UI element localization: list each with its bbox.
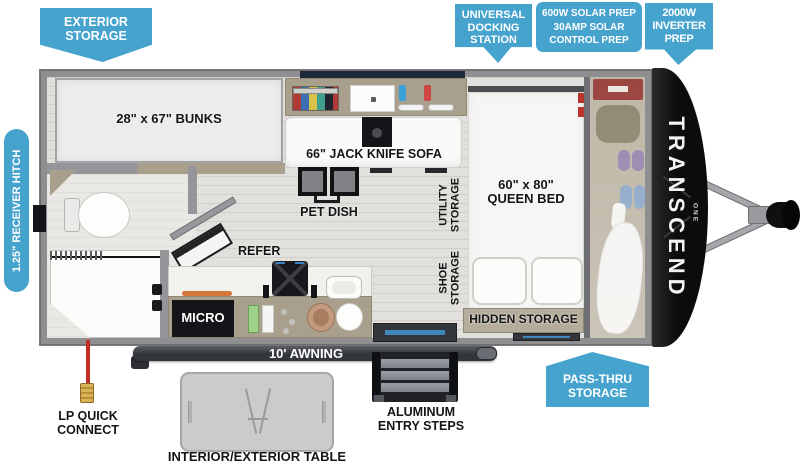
front-cap: TRANSCEND ONE — [652, 68, 708, 347]
joycon-red — [424, 85, 431, 101]
brand-sublogo: ONE — [691, 203, 698, 223]
bed-mat — [513, 333, 580, 341]
pillow-2 — [531, 257, 583, 305]
bowl-inner — [313, 309, 329, 326]
sofa-label: 66" JACK KNIFE SOFA — [295, 148, 453, 162]
stove-knob — [263, 285, 269, 298]
shower-fixture — [152, 284, 162, 295]
bathroom-wall — [188, 166, 197, 214]
sink-basin — [332, 281, 356, 294]
overhead-cabinet — [285, 78, 467, 116]
pet-dish-stand — [314, 196, 340, 203]
callout-solar-prep: 600W SOLAR PREP 30AMP SOLAR CONTROL PREP — [536, 2, 642, 52]
pet-dish-icon — [298, 167, 327, 196]
refer-label: REFER — [238, 245, 300, 259]
utility-storage-label: UTILITY STORAGE — [438, 178, 463, 232]
table-leg-bar — [248, 418, 268, 420]
step-tread — [381, 359, 449, 368]
step-tread-2 — [381, 371, 449, 380]
callout-receiver-hitch: 1.25" RECEIVER HITCH — [4, 129, 29, 292]
pass-thru-glass — [590, 77, 645, 338]
shoe-storage-label: SHOE STORAGE — [438, 251, 463, 305]
table-leg — [245, 388, 257, 433]
hidden-storage-label: HIDDEN STORAGE — [463, 313, 584, 326]
utensil — [281, 309, 287, 315]
lp-line — [86, 340, 90, 385]
tv-dot — [371, 97, 376, 102]
brand-logo: TRANSCEND — [663, 116, 689, 299]
pillow — [472, 257, 527, 305]
sofa-console-dot — [372, 128, 382, 138]
awning-label: 10' AWNING — [251, 347, 361, 361]
utensil-3 — [283, 328, 289, 334]
cutting-board-white — [262, 305, 274, 333]
pet-dish-icon-2 — [330, 167, 359, 196]
step-foot — [374, 395, 384, 402]
sofa-console — [362, 117, 392, 147]
remote-2 — [428, 104, 454, 111]
bunk-wall — [47, 163, 285, 174]
entry-mat — [373, 323, 457, 342]
awning-roller — [476, 347, 497, 360]
floorplan-canvas: 28" x 67" BUNKS REFER MICRO — [0, 0, 800, 465]
tv-icon — [350, 85, 395, 112]
burner-accent — [276, 262, 285, 264]
step-foot-2 — [446, 395, 456, 402]
callout-universal-docking-station: UNIVERSAL DOCKING STATION — [455, 4, 532, 63]
sofa-leg-2 — [425, 168, 447, 173]
lp-label: LP QUICK CONNECT — [46, 410, 130, 438]
table-label: INTERIOR/EXTERIOR TABLE — [149, 450, 365, 464]
microwave: MICRO — [172, 300, 234, 337]
sink-icon — [326, 276, 362, 299]
joycon-blue — [399, 85, 406, 101]
towel-bar — [182, 291, 232, 296]
plate — [336, 303, 363, 331]
table-hinge-2 — [322, 401, 326, 423]
pet-dish-label: PET DISH — [293, 206, 365, 220]
burner-accent-2 — [295, 262, 304, 264]
receiver-hitch-box — [33, 205, 46, 232]
callout-inverter-prep: 2000W INVERTER PREP — [645, 3, 713, 65]
lp-connector — [80, 383, 94, 403]
callout-exterior-storage: EXTERIOR STORAGE — [40, 8, 152, 62]
bed-mat-stripe — [523, 336, 570, 338]
step-rail — [372, 352, 380, 396]
pass-thru-area — [590, 77, 645, 338]
bowl — [307, 303, 335, 332]
stove-knob-2 — [311, 285, 317, 298]
entry-steps — [372, 352, 458, 402]
stove-icon — [272, 261, 308, 296]
hitch-ball — [782, 200, 800, 230]
remote — [398, 104, 424, 111]
callout-pass-thru-storage: PASS-THRU STORAGE — [546, 352, 649, 407]
utensil-2 — [289, 319, 295, 325]
bunks-label: 28" x 67" BUNKS — [79, 112, 259, 126]
sofa-leg — [370, 168, 392, 173]
toilet-icon — [78, 192, 130, 238]
table-hinge — [188, 401, 192, 423]
queen-bed-label: 60" x 80" QUEEN BED — [468, 178, 584, 207]
entry-steps-label: ALUMINUM ENTRY STEPS — [375, 406, 467, 434]
step-rail-2 — [450, 352, 458, 396]
folding-table — [180, 372, 334, 452]
step-tread-3 — [381, 383, 449, 392]
entry-mat-stripe — [385, 330, 444, 335]
soundbar — [293, 88, 338, 94]
micro-label: MICRO — [172, 311, 234, 325]
cutting-board-green — [248, 305, 259, 333]
table-leg-2 — [259, 388, 271, 433]
shower-curtain — [50, 251, 102, 260]
shower-fixture-2 — [152, 300, 162, 311]
